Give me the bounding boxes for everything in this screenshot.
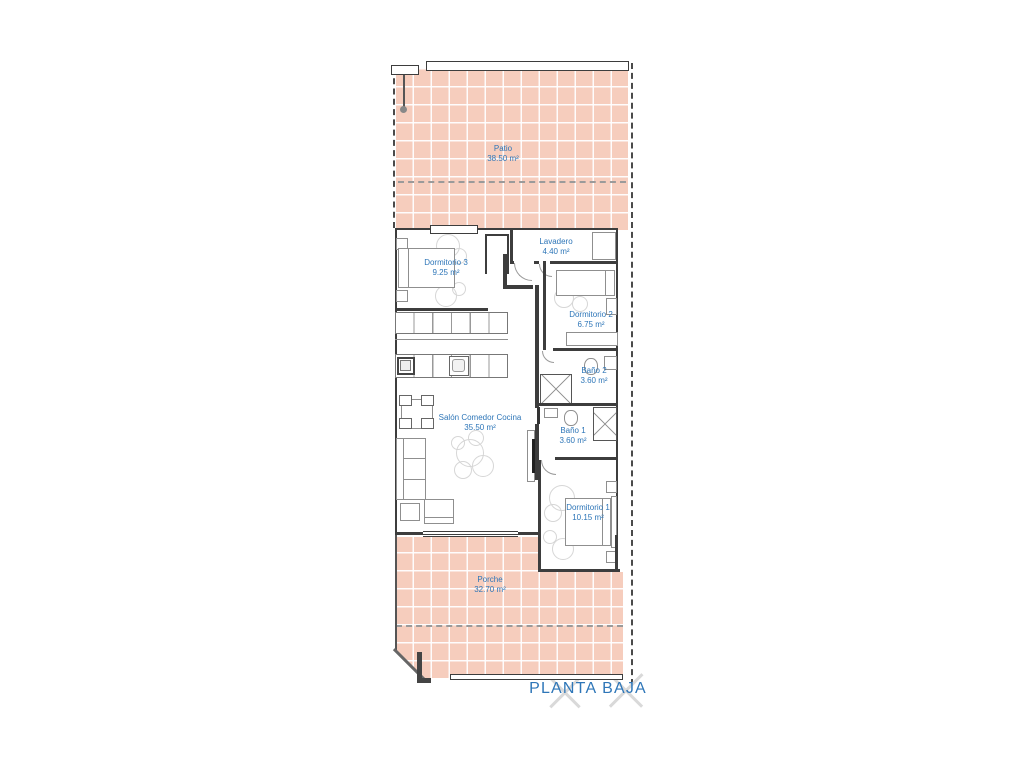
plant-symbol <box>543 530 557 544</box>
room-area: 10.15 m² <box>546 513 630 523</box>
room-name: Baño 2 <box>552 366 636 376</box>
kitchen-counter-edge <box>395 339 508 340</box>
side-table-symbol <box>400 503 420 521</box>
plan-title: PLANTA BAJA <box>528 680 648 698</box>
patio-dashed-line <box>398 181 626 183</box>
wall <box>535 403 618 406</box>
nightstand-symbol <box>396 290 408 302</box>
room-label-bano-1: Baño 1 3.60 m² <box>531 426 615 447</box>
room-area: 3.60 m² <box>531 436 615 446</box>
room-label-salon: Salón Comedor Cocina 35.50 m² <box>425 413 535 434</box>
plot-boundary-left <box>393 68 395 228</box>
room-area: 35.50 m² <box>425 423 535 433</box>
armchair-symbol <box>424 499 454 524</box>
room-label-dormitorio-1: Dormitorio 1 10.15 m² <box>546 503 630 524</box>
chair-symbol <box>421 395 434 406</box>
wall <box>417 678 431 683</box>
wall <box>510 230 513 262</box>
sliding-door-line <box>423 534 518 535</box>
wall <box>543 261 546 350</box>
room-name: Dormitorio 3 <box>404 258 488 268</box>
plant-symbol <box>472 455 494 477</box>
sofa-cushion-line <box>403 458 425 459</box>
room-name: Baño 1 <box>531 426 615 436</box>
door-leaf <box>537 407 540 424</box>
room-area: 3.60 m² <box>552 376 636 386</box>
room-label-dormitorio-3: Dormitorio 3 9.25 m² <box>404 258 488 279</box>
room-name: Lavadero <box>514 237 598 247</box>
patio-wall-segment <box>391 65 419 75</box>
wall <box>534 261 539 264</box>
wall <box>550 261 618 264</box>
sofa-cushion-line <box>403 479 425 480</box>
room-label-dormitorio-2: Dormitorio 2 6.75 m² <box>549 310 633 331</box>
room-name: Dormitorio 1 <box>546 503 630 513</box>
wall <box>395 532 423 535</box>
room-name: Porche <box>448 575 532 585</box>
wall <box>538 460 541 572</box>
armchair-back-line <box>425 517 453 518</box>
bed-pillow-line <box>605 271 606 295</box>
porche-left-edge <box>395 535 397 650</box>
sofa-back-line <box>403 439 404 499</box>
window <box>430 225 478 234</box>
porche-tiles <box>396 537 623 678</box>
wall <box>518 532 539 535</box>
room-label-porche: Porche 32.70 m² <box>448 575 532 596</box>
kitchen-cabinets-symbol <box>395 312 508 334</box>
patio-top-wall <box>426 61 629 71</box>
room-area: 6.75 m² <box>549 320 633 330</box>
stove-burners <box>452 359 465 372</box>
toilet-symbol <box>564 410 578 426</box>
room-name: Salón Comedor Cocina <box>425 413 535 423</box>
wall <box>503 285 533 289</box>
wall <box>615 535 618 572</box>
kitchen-sink-basin <box>400 360 411 371</box>
dresser-symbol <box>566 332 618 346</box>
room-area: 38.50 m² <box>448 154 558 164</box>
wall <box>553 348 618 351</box>
room-area: 32.70 m² <box>448 585 532 595</box>
floor-plan: PLANTA BAJA Patio 38.50 m² Dormitorio 3 … <box>388 58 650 720</box>
room-area: 4.40 m² <box>514 247 598 257</box>
chair-symbol <box>399 418 412 429</box>
room-name: Dormitorio 2 <box>549 310 633 320</box>
wall <box>535 285 539 408</box>
wall <box>538 569 620 572</box>
floor-plan-page: PLANTA BAJA Patio 38.50 m² Dormitorio 3 … <box>0 0 1024 768</box>
sofa-symbol <box>396 438 426 500</box>
sink-symbol <box>544 408 558 418</box>
wall <box>510 261 514 264</box>
room-label-lavadero: Lavadero 4.40 m² <box>514 237 598 258</box>
wall <box>555 457 618 460</box>
plant-symbol <box>454 461 472 479</box>
room-label-bano-2: Baño 2 3.60 m² <box>552 366 636 387</box>
room-label-patio: Patio 38.50 m² <box>448 144 558 165</box>
room-area: 9.25 m² <box>404 268 488 278</box>
porche-dashed-line <box>396 625 623 627</box>
chair-symbol <box>399 395 412 406</box>
plant-symbol <box>451 436 465 450</box>
wall <box>503 254 507 288</box>
nightstand-symbol <box>606 481 617 493</box>
wall <box>395 308 488 311</box>
drain-symbol <box>400 106 407 113</box>
drain-pipe-symbol <box>403 75 405 109</box>
room-name: Patio <box>448 144 558 154</box>
